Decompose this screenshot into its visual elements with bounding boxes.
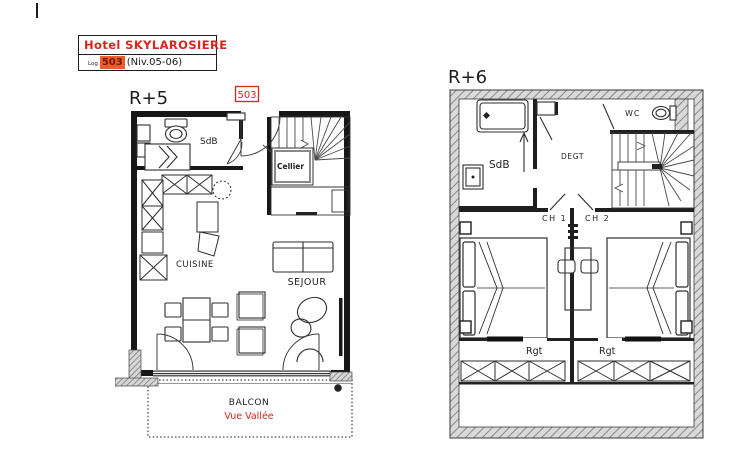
stair-direction-arrow — [301, 140, 308, 148]
unit-tag-503: 503 — [236, 87, 259, 102]
desk-chair-icon — [581, 260, 598, 273]
window-icon — [339, 298, 343, 356]
toilet-icon — [653, 106, 677, 120]
log-label: Log — [88, 61, 98, 67]
unit-number-highlight: 503 — [100, 56, 125, 69]
kitchen-sink-icon — [198, 232, 219, 256]
room-label-sdb-r5: SdB — [200, 137, 218, 147]
title-block-hotel-row: Hotel SKYLAROSIERE — [79, 36, 216, 55]
understair-closet — [271, 187, 350, 215]
room-label-degt: DEGT — [561, 152, 584, 161]
washbasin-icon — [463, 165, 483, 189]
room-label-sejour: SEJOUR — [288, 277, 327, 288]
room-label-rgt-right: Rgt — [599, 346, 616, 357]
room-label-balcon: BALCON — [229, 398, 269, 408]
desk-chair-icon — [558, 260, 575, 273]
floor-plan-r6-drawing: R+6 — [437, 58, 722, 458]
unit-tag-503-label: 503 — [237, 90, 256, 101]
sheet-corner-tick — [36, 3, 38, 18]
hotel-name: Hotel SKYLAROSIERE — [84, 38, 227, 52]
kitchen-cabinet-icon — [140, 180, 167, 280]
bathtub-icon — [477, 100, 528, 132]
floor-plan-r5-drawing: R+5 503 — [115, 80, 395, 470]
room-label-wc: WC — [625, 109, 641, 118]
wall-vent-icon — [227, 113, 245, 120]
cellier-box: Cellier — [272, 148, 313, 185]
room-label-cellier: Cellier — [277, 162, 304, 171]
floor-label-r5: R+5 — [129, 88, 168, 109]
chair-icon — [212, 303, 228, 317]
floor-plan-sheet: Hotel SKYLAROSIERE Log 503 (Niv.05-06) R… — [0, 0, 748, 475]
room-label-ch2: CH 2 — [585, 214, 610, 223]
room-label-cuisine: CUISINE — [176, 260, 214, 270]
chair-icon — [165, 303, 181, 317]
title-block: Hotel SKYLAROSIERE Log 503 (Niv.05-06) — [78, 35, 217, 71]
chair-icon — [212, 327, 228, 341]
room-label-sdb-r6: SdB — [489, 159, 510, 171]
kitchen-counter-icon — [197, 202, 218, 232]
shelf-icon — [137, 125, 150, 141]
bed-icon-ch1 — [460, 238, 547, 338]
balcony-view-label: Vue Vallée — [224, 411, 273, 422]
r5-living-room — [273, 242, 333, 362]
pouf-icon — [237, 292, 265, 355]
bed-icon-ch2 — [607, 238, 690, 338]
armchair-icon — [289, 293, 331, 362]
room-label-rgt-left: Rgt — [526, 346, 543, 357]
shower-closet-icon — [145, 144, 190, 170]
title-block-unit-row: Log 503 (Niv.05-06) — [79, 55, 216, 70]
kitchen-cabinet-icon — [162, 175, 212, 194]
r5-dining — [165, 292, 265, 355]
room-label-ch1: CH 1 — [542, 214, 567, 223]
sofa-icon — [273, 242, 333, 272]
level-label: (Niv.05-06) — [127, 57, 182, 68]
chair-icon — [165, 327, 181, 341]
post-icon — [335, 385, 342, 392]
balcony: BALCON Vue Vallée — [148, 380, 352, 437]
toilet-icon — [165, 119, 187, 142]
floor-label-r6: R+6 — [448, 67, 487, 88]
column-dashed-icon — [213, 181, 231, 199]
closet-icon — [537, 102, 555, 115]
